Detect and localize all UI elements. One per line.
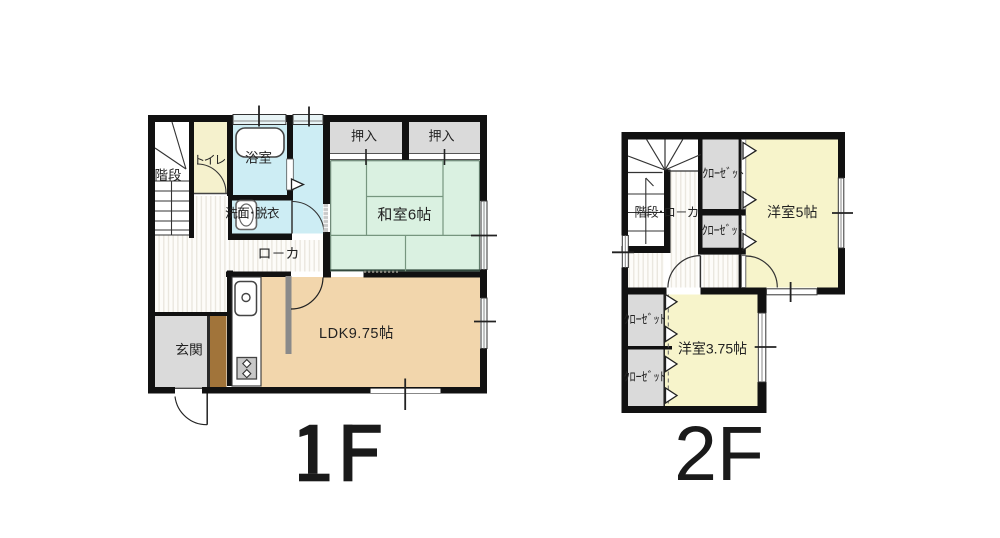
svg-text:押入: 押入 [428, 129, 454, 144]
svg-text:階段: 階段 [155, 168, 182, 183]
svg-text:ｸﾛｰｾﾞｯﾄ: ｸﾛｰｾﾞｯﾄ [624, 313, 666, 327]
svg-text:玄関: 玄関 [175, 342, 203, 358]
svg-text:ロ－カ: ロ－カ [258, 246, 300, 262]
svg-text:階段･ロ－カ: 階段･ロ－カ [635, 205, 699, 220]
svg-text:洋室3.75帖: 洋室3.75帖 [678, 341, 747, 357]
svg-text:トイレ: トイレ [193, 153, 225, 167]
svg-text:押入: 押入 [351, 129, 377, 144]
svg-text:2F: 2F [674, 411, 764, 497]
svg-text:ｸﾛｰｾﾞｯﾄ: ｸﾛｰｾﾞｯﾄ [702, 167, 744, 181]
svg-text:LDK9.75帖: LDK9.75帖 [319, 325, 394, 342]
svg-text:浴室: 浴室 [245, 150, 272, 166]
svg-text:ｸﾛｰｾﾞｯﾄ: ｸﾛｰｾﾞｯﾄ [624, 370, 666, 384]
svg-text:ｸﾛｰｾﾞｯﾄ: ｸﾛｰｾﾞｯﾄ [702, 224, 744, 238]
svg-text:洗面･脱衣: 洗面･脱衣 [225, 206, 280, 221]
svg-text:和室6帖: 和室6帖 [377, 207, 431, 224]
svg-text:洋室5帖: 洋室5帖 [767, 204, 818, 220]
